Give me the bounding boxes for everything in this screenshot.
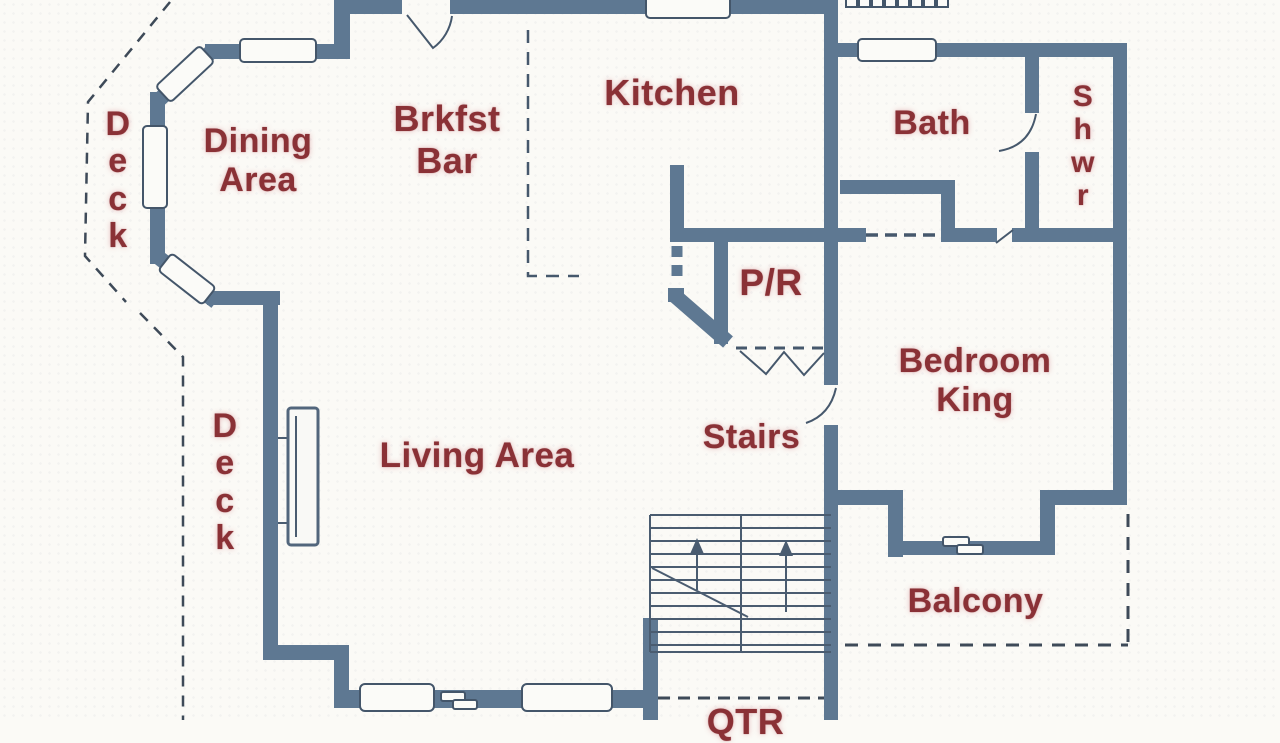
- room-label-balcony: Balcony: [878, 582, 1073, 621]
- window-kitchen-top: [646, 0, 730, 18]
- stair-arrow-up-left: [690, 538, 704, 590]
- windows: [143, 0, 936, 711]
- entry-door-swing: [407, 15, 452, 48]
- room-label-powder-room: P/R: [716, 262, 826, 305]
- room-label-brkfst: Brkfst Bar: [357, 98, 537, 182]
- window-bath-top: [858, 39, 936, 61]
- room-label-qtr: QTR: [688, 701, 803, 743]
- floor-plan: D e c k Dining Area Brkfst Bar Kitchen B…: [0, 0, 1280, 720]
- staircase: [650, 515, 831, 652]
- window-dining-top: [240, 39, 316, 62]
- room-label-dining: Dining Area: [168, 122, 348, 201]
- window-living-bottom-1: [360, 684, 434, 711]
- room-label-bedroom: Bedroom King: [870, 342, 1080, 421]
- deck-left-outline: [140, 313, 183, 720]
- stair-arrow-up-right: [779, 540, 793, 612]
- room-label-kitchen: Kitchen: [582, 72, 762, 114]
- room-label-stairs: Stairs: [684, 418, 819, 457]
- bath-door-leaf: [996, 230, 1013, 243]
- exterior-stairs-top: [846, 0, 948, 7]
- room-label-shwr: S h w r: [1060, 80, 1106, 212]
- bifold-door: [740, 351, 824, 375]
- room-label-living: Living Area: [352, 436, 602, 477]
- window-dining-diag-lower: [158, 253, 216, 305]
- room-label-deck-left: D e c k: [200, 408, 250, 558]
- window-living-bottom-2: [522, 684, 612, 711]
- room-label-deck-top: D e c k: [88, 106, 148, 256]
- room-label-bath: Bath: [852, 104, 1012, 143]
- window-dining-diag-upper: [156, 45, 215, 102]
- fireplace: [278, 408, 318, 545]
